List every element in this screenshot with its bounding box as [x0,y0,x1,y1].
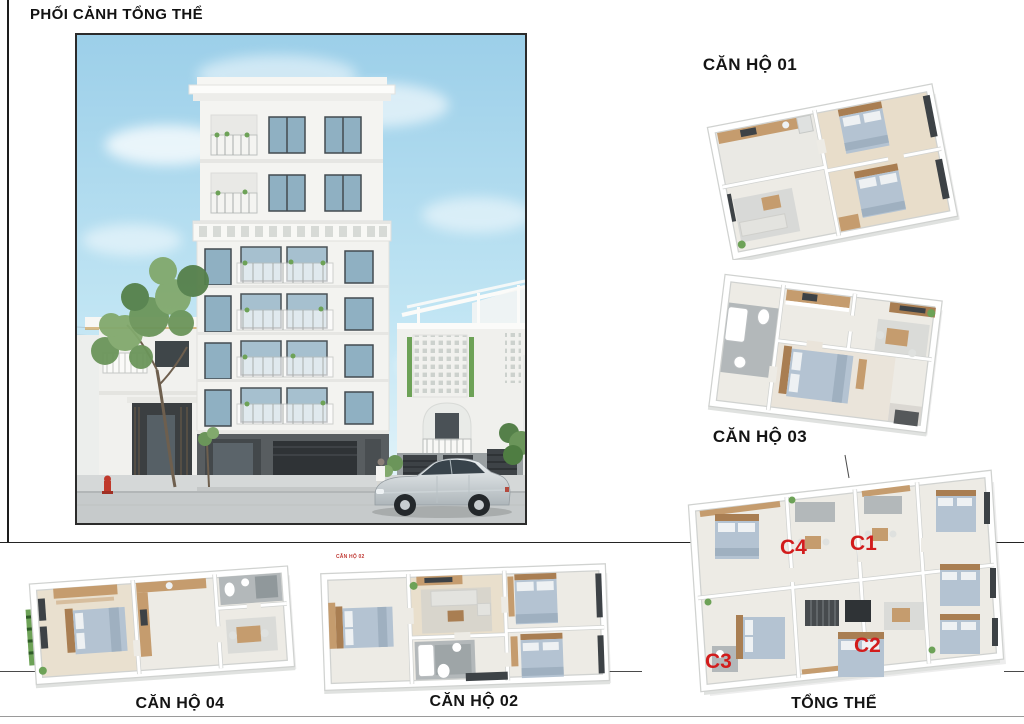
unit-label-c2: C2 [854,634,881,657]
unit-label-c4: C4 [780,536,807,559]
floorplan-overall: C4 C1 C3 C2 [640,450,1024,706]
apt01-label: CĂN HỘ 01 [695,55,805,75]
floorplan-apt03 [688,255,970,445]
perspective-render-frame [75,33,527,525]
unit-label-c3: C3 [705,650,732,673]
unit-label-c1: C1 [850,532,877,555]
bottom-rule [0,716,1024,717]
overall-label: TỔNG THỂ [772,695,896,713]
apt04-label: CĂN HỘ 04 [118,695,242,713]
apt02-watermark: CĂN HỘ 02 [336,554,364,560]
page-title: PHỐI CẢNH TỔNG THỂ [30,6,203,23]
page-border-line-left [7,0,9,543]
floorplan-apt02 [314,546,622,704]
building-illustration [77,35,525,523]
apt02-label: CĂN HỘ 02 [412,693,536,711]
central-tower [189,77,395,487]
poster-page: { "title": "PHỐI CẢNH TỔNG THỂ", "panels… [0,0,1024,724]
apt03-label: CĂN HỘ 03 [700,427,820,447]
floorplan-apt01 [692,68,970,260]
floorplan-apt04 [22,550,310,702]
